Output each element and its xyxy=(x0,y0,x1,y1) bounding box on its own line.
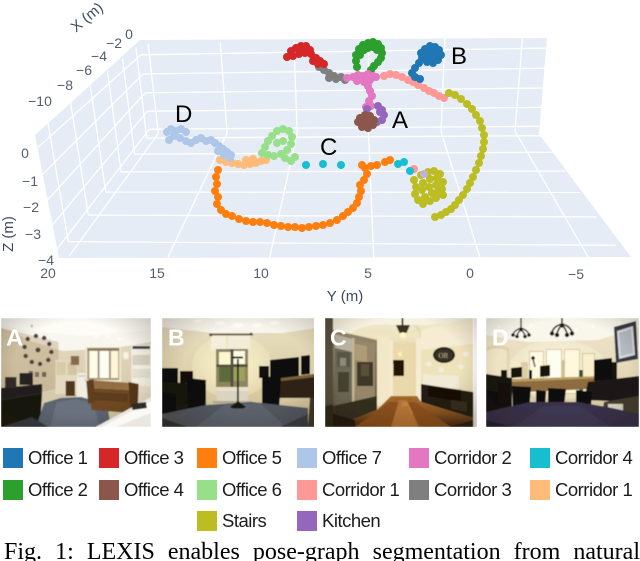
svg-text:−2: −2 xyxy=(106,35,122,51)
svg-text:D: D xyxy=(175,101,192,128)
svg-text:C: C xyxy=(320,134,337,161)
svg-text:D: D xyxy=(492,325,509,351)
svg-text:0: 0 xyxy=(21,145,29,161)
svg-text:−4: −4 xyxy=(91,48,107,64)
svg-text:−2: −2 xyxy=(23,199,39,215)
svg-text:10: 10 xyxy=(253,265,269,281)
svg-text:−5: −5 xyxy=(568,266,584,282)
svg-text:15: 15 xyxy=(149,265,165,281)
svg-text:B: B xyxy=(451,43,467,70)
svg-text:Y (m): Y (m) xyxy=(327,288,363,305)
svg-text:C: C xyxy=(330,325,347,351)
svg-text:20: 20 xyxy=(40,265,56,281)
svg-text:−1: −1 xyxy=(22,173,38,189)
svg-text:−10: −10 xyxy=(28,93,52,109)
svg-text:Z (m): Z (m) xyxy=(0,216,17,252)
svg-text:0: 0 xyxy=(125,26,133,42)
svg-text:−8: −8 xyxy=(57,77,73,93)
svg-text:−3: −3 xyxy=(25,226,41,242)
svg-text:B: B xyxy=(168,325,185,351)
svg-text:0: 0 xyxy=(466,265,474,281)
svg-text:X (m): X (m) xyxy=(68,0,107,36)
svg-text:A: A xyxy=(6,325,23,351)
svg-text:A: A xyxy=(392,107,408,134)
svg-text:5: 5 xyxy=(364,265,372,281)
svg-text:−6: −6 xyxy=(76,62,92,78)
